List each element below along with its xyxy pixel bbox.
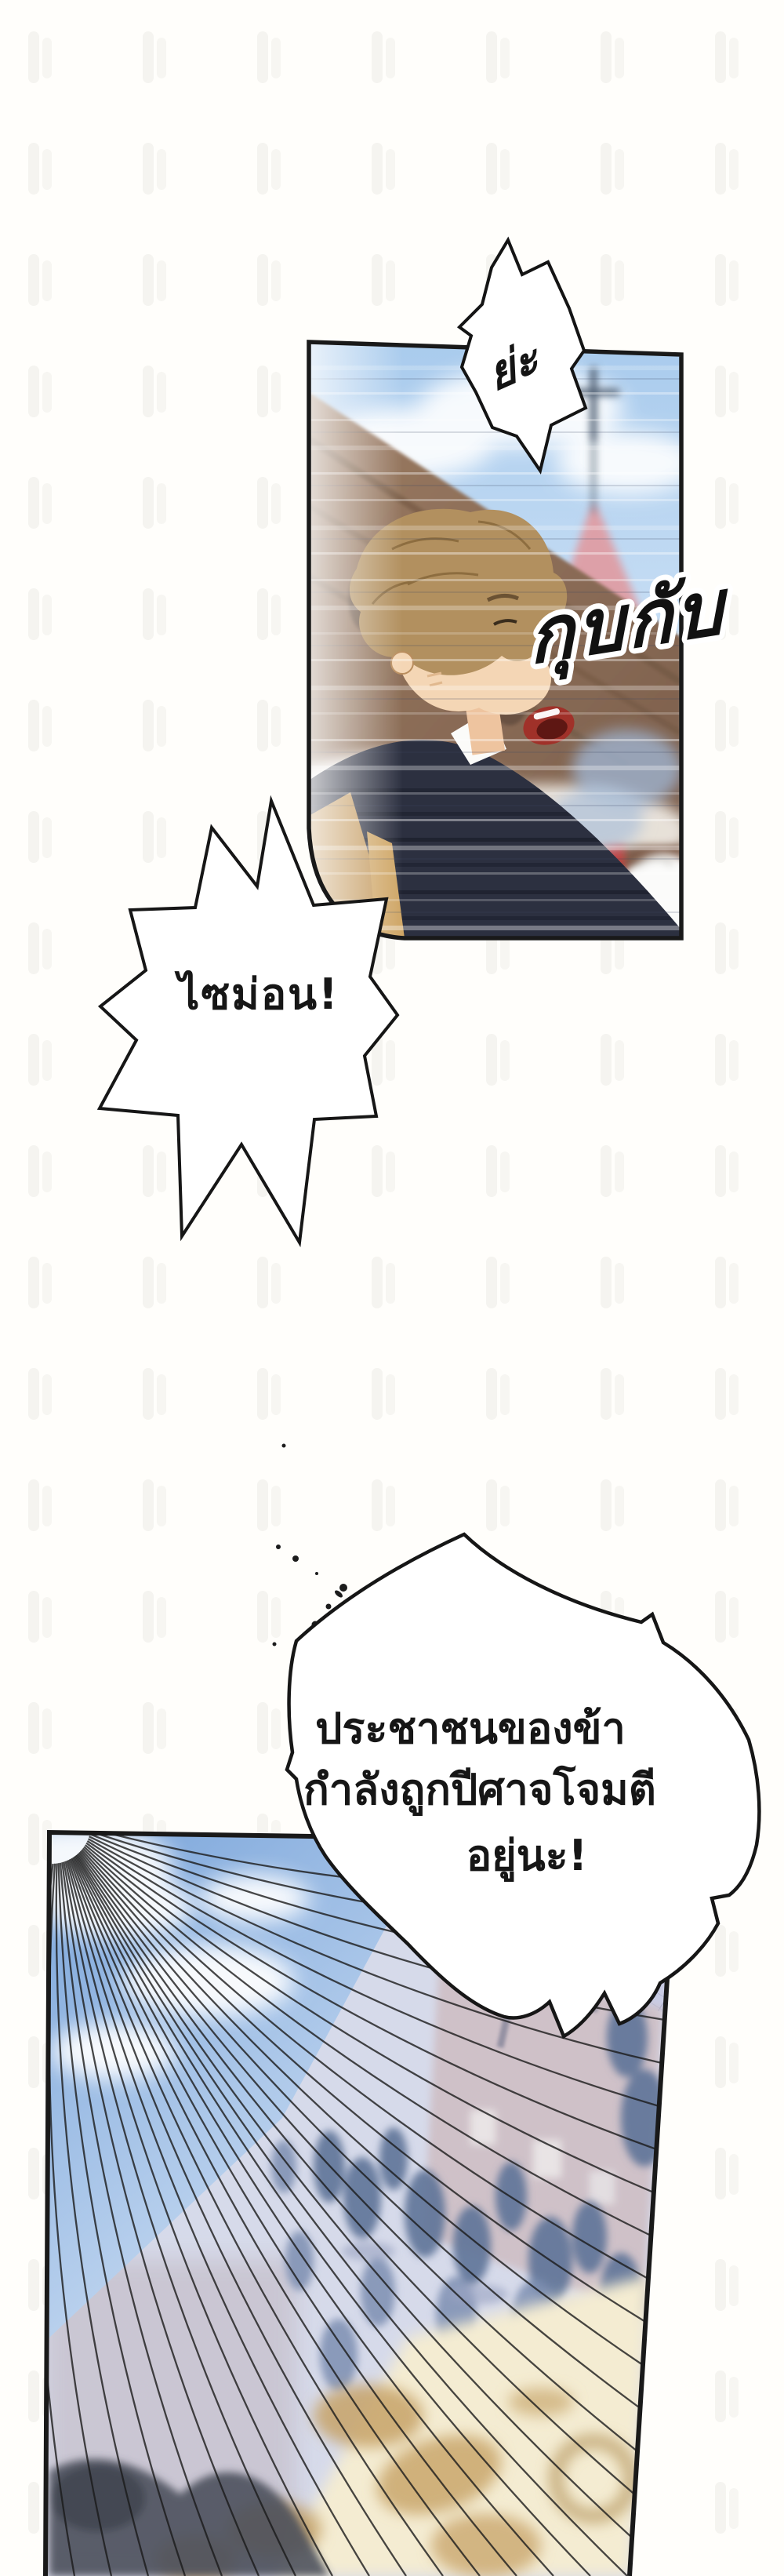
edge-glow xyxy=(309,342,403,938)
plea-line-1: ประชาชนของข้า xyxy=(315,1704,626,1753)
manga-page: ย่ะ กุบกับ ไซม่อน! xyxy=(0,0,784,2576)
plea-line-2: กำลังถูกปีศาจโจมตี xyxy=(303,1765,656,1816)
simon-bubble-text: ไซม่อน! xyxy=(174,970,339,1019)
plea-line-3: อยู่นะ! xyxy=(466,1831,588,1882)
